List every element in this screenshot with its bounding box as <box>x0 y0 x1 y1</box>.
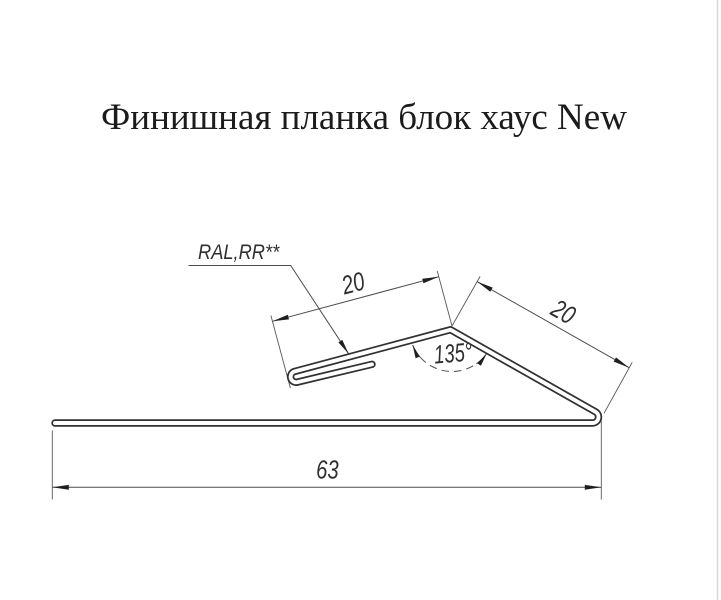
svg-text:RAL,RR**: RAL,RR** <box>198 241 280 265</box>
svg-text:20: 20 <box>338 266 368 300</box>
svg-text:Финишная планка блок хаус New: Финишная планка блок хаус New <box>101 97 627 138</box>
svg-text:63: 63 <box>316 455 339 484</box>
svg-text:20: 20 <box>546 293 581 330</box>
